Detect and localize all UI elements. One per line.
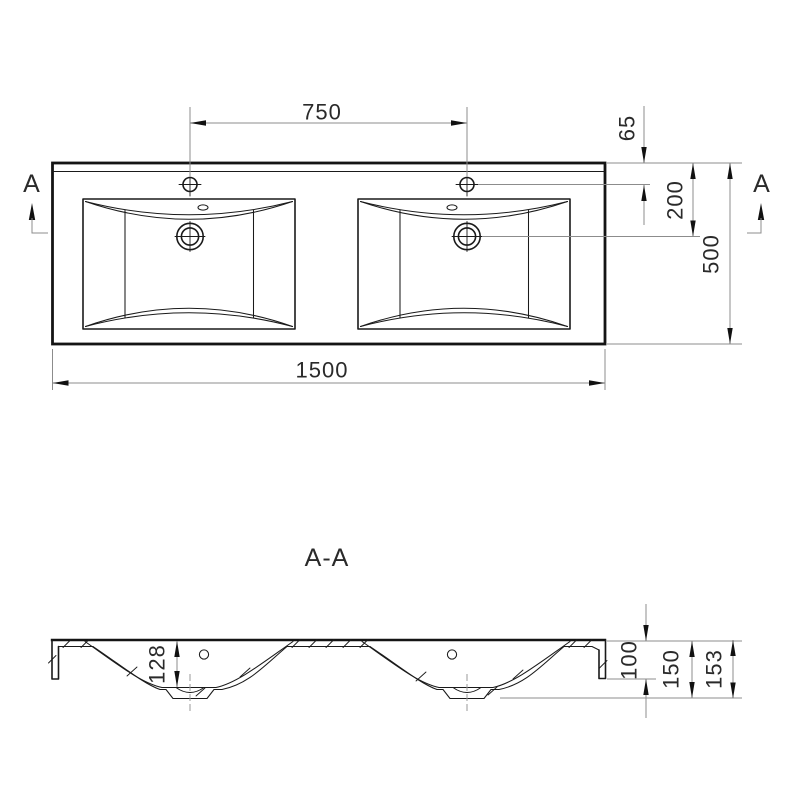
left-bowl-opening	[83, 199, 295, 329]
right-overflow-hole	[447, 205, 457, 210]
dimension-hole-offset: 65	[615, 106, 647, 225]
dimension-overall-width: 1500	[53, 349, 606, 390]
left-drain-hole	[175, 222, 205, 252]
right-flange	[599, 640, 606, 679]
dim-200-label: 200	[663, 180, 688, 220]
right-bowl-interior	[362, 642, 570, 688]
section-profile	[52, 640, 606, 714]
left-overflow-section	[199, 650, 208, 659]
section-view: A-A	[49, 544, 743, 718]
dimension-body-height: 150	[659, 641, 695, 698]
hatch-marks	[49, 640, 608, 697]
technical-drawing-sheet: 750 1500 65 200	[0, 0, 800, 800]
left-overflow-hole	[198, 205, 208, 210]
section-marker-right: A	[747, 170, 771, 233]
dimension-faucet-spacing: 750	[190, 100, 467, 178]
dimension-bowl-depth: 128	[145, 641, 180, 687]
dim-100-label: 100	[617, 640, 642, 680]
section-label-right: A	[753, 170, 771, 198]
section-title: A-A	[305, 544, 350, 572]
dim-1500-label: 1500	[296, 358, 349, 383]
dim-65-label: 65	[615, 115, 640, 141]
left-bowl-interior	[85, 642, 293, 688]
dimension-drain-offset: 200	[663, 163, 696, 237]
right-bowl	[358, 173, 570, 329]
left-flange	[52, 640, 59, 679]
dimension-overall-height: 153	[702, 640, 736, 699]
dimension-overall-depth: 500	[699, 163, 733, 344]
section-marker-left: A	[23, 170, 48, 233]
dim-153-label: 153	[702, 649, 727, 689]
section-label-left: A	[23, 170, 41, 198]
double-washbasin-drawing: 750 1500 65 200	[0, 0, 800, 800]
dim-150-label: 150	[659, 649, 684, 689]
dim-500-label: 500	[699, 234, 724, 274]
dimension-rim-height: 100	[617, 604, 649, 718]
right-bowl-opening	[358, 199, 570, 329]
top-view: 750 1500 65 200	[23, 100, 771, 391]
dim-128-label: 128	[145, 644, 170, 684]
left-bowl	[83, 173, 295, 329]
dim-750-label: 750	[302, 100, 342, 125]
right-overflow-section	[447, 650, 456, 659]
right-drain-hole	[452, 222, 482, 252]
